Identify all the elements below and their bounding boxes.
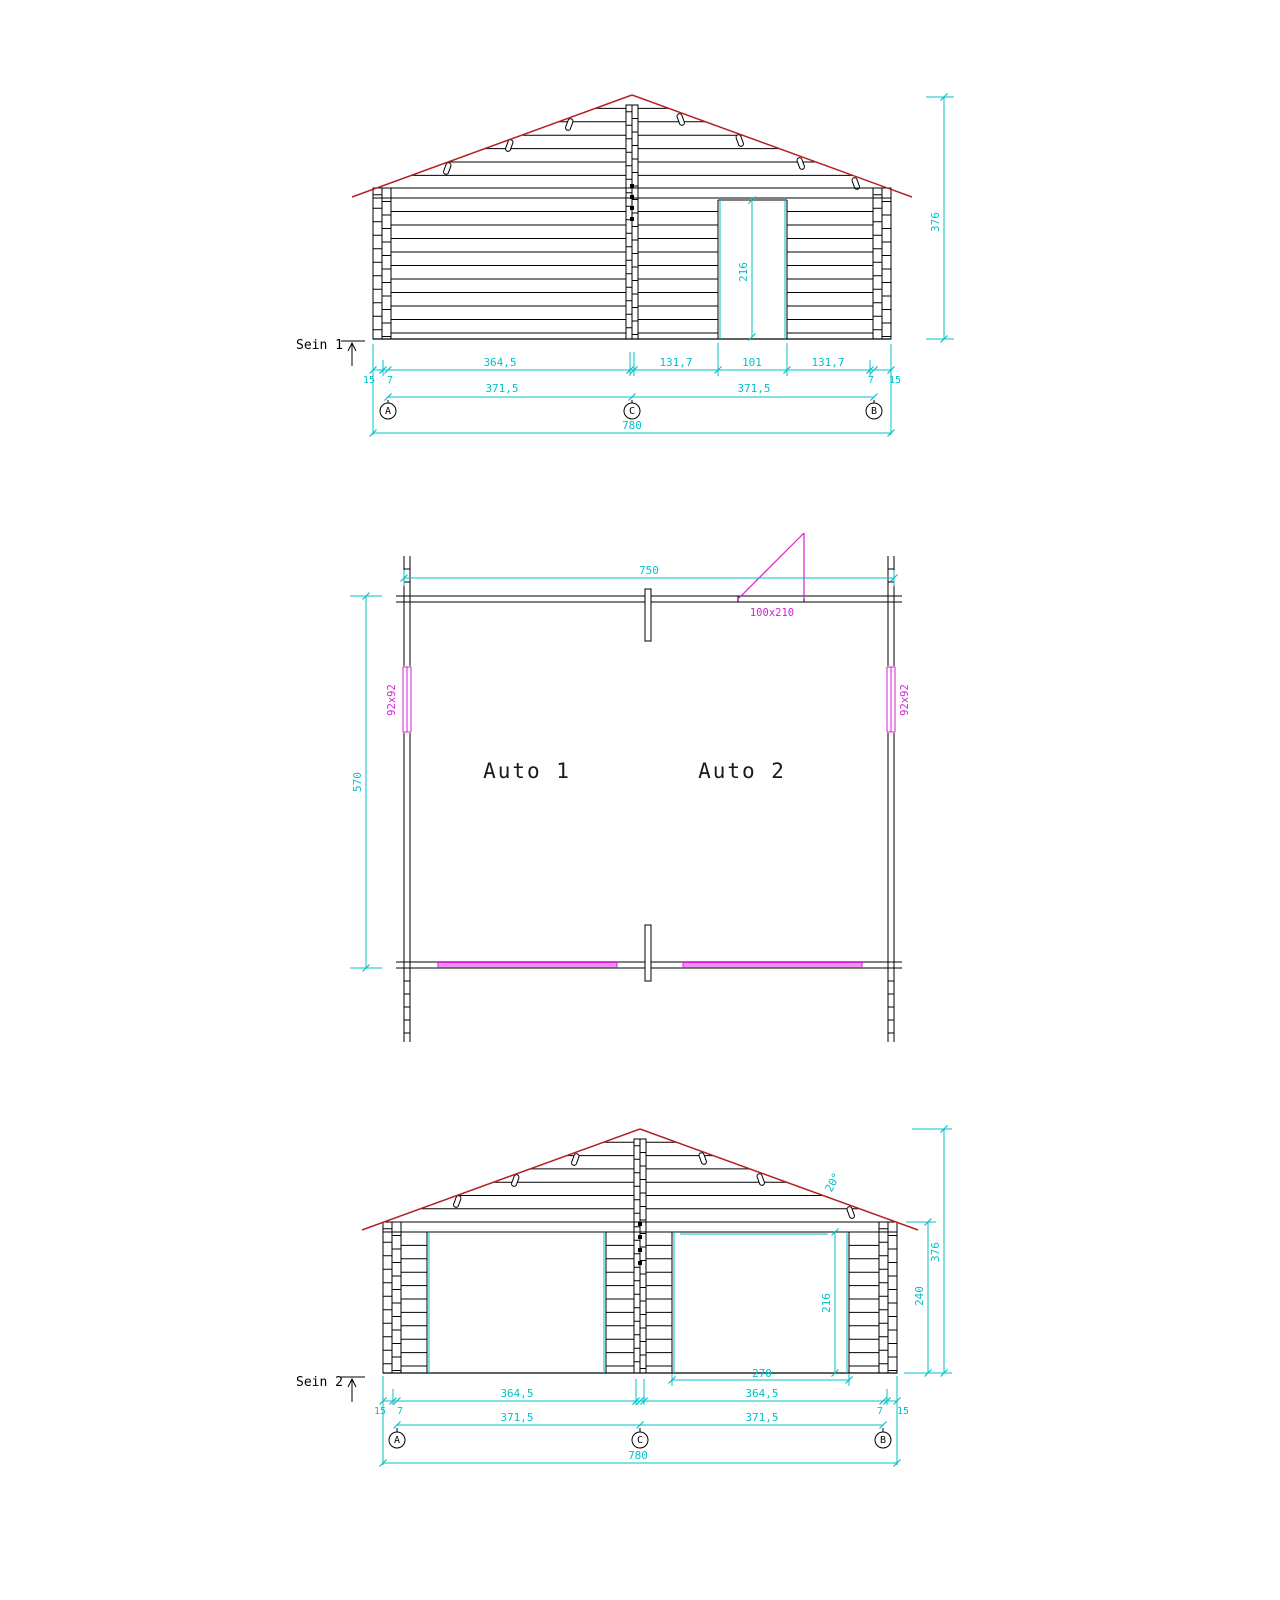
dim-half-right: 371,5 bbox=[745, 1411, 778, 1424]
axis-label-a: A bbox=[385, 406, 391, 417]
bottom-roof-line-right bbox=[640, 1129, 918, 1230]
bay-right-label: Auto 2 bbox=[698, 759, 786, 783]
garage-plan-drawing: A C B Sein 1 364,5 131,7 101 131,7 15 7 … bbox=[0, 0, 1280, 1600]
top-axis-circles: A C B bbox=[380, 403, 882, 419]
dim-opening-height: 216 bbox=[820, 1293, 833, 1313]
dim-edge-15-left: 15 bbox=[374, 1406, 386, 1417]
dim-edge-15-right: 15 bbox=[889, 375, 901, 386]
axis-label-a: A bbox=[394, 1435, 400, 1446]
dim-plan-width: 750 bbox=[639, 564, 659, 577]
fastener-dot bbox=[630, 184, 634, 188]
top-elevation: A C B Sein 1 364,5 131,7 101 131,7 15 7 … bbox=[296, 95, 954, 435]
dim-half-left: 371,5 bbox=[500, 1411, 533, 1424]
dim-seg-left: 364,5 bbox=[500, 1387, 533, 1400]
window-left-label: 92x92 bbox=[386, 684, 398, 716]
bottom-view-marker bbox=[341, 1377, 365, 1402]
dim-half-right: 371,5 bbox=[737, 382, 770, 395]
rafter-end-tick bbox=[796, 157, 805, 170]
floor-plan: 750 570 100x210 92x92 92x92 Auto 1 Auto … bbox=[350, 533, 911, 1042]
top-view-marker bbox=[341, 341, 365, 366]
rafter-end-tick bbox=[571, 1153, 580, 1166]
dim-seg-mid-left: 131,7 bbox=[659, 356, 692, 369]
rafter-end-tick bbox=[676, 113, 685, 126]
dim-edge-7-left: 7 bbox=[397, 1406, 403, 1417]
dimension-tick-marks bbox=[363, 94, 948, 1467]
fastener-dot bbox=[638, 1222, 642, 1226]
bottom-roof-line-left bbox=[362, 1129, 640, 1230]
plan-window-right bbox=[886, 666, 896, 733]
drawing-sheet: A C B Sein 1 364,5 131,7 101 131,7 15 7 … bbox=[0, 0, 1280, 1600]
bottom-dimensions bbox=[383, 1129, 952, 1465]
dim-overall: 780 bbox=[628, 1449, 648, 1462]
plan-door-swing bbox=[738, 533, 804, 599]
plan-center-post bbox=[645, 925, 651, 981]
fastener-dot bbox=[630, 217, 634, 221]
bottom-elevation-log-courses bbox=[383, 1139, 897, 1373]
dim-edge-7-left: 7 bbox=[387, 375, 393, 386]
door-swing-arc bbox=[738, 533, 804, 599]
axis-label-b: B bbox=[880, 1435, 886, 1446]
top-view-label: Sein 1 bbox=[296, 338, 343, 353]
dim-door-height: 216 bbox=[737, 262, 750, 282]
top-roof-line-left bbox=[352, 95, 632, 197]
dim-total-height: 376 bbox=[929, 212, 942, 232]
bay-left-label: Auto 1 bbox=[483, 759, 571, 783]
top-elevation-log-courses bbox=[373, 105, 891, 339]
door-size-label: 100x210 bbox=[750, 607, 794, 619]
dim-opening-width: 270 bbox=[752, 1367, 772, 1380]
dim-edge-7-right: 7 bbox=[877, 1406, 883, 1417]
top-roof-line-right bbox=[632, 95, 912, 197]
dim-edge-15-right: 15 bbox=[897, 1406, 909, 1417]
plan-window-left bbox=[402, 666, 412, 733]
window-right-label: 92x92 bbox=[899, 684, 911, 716]
fastener-dot bbox=[638, 1235, 642, 1239]
dim-edge-15-left: 15 bbox=[363, 375, 375, 386]
bottom-elevation: A C B Sein 2 20° 270 216 240 376 364,5 3… bbox=[296, 1129, 952, 1465]
dim-seg-left: 364,5 bbox=[483, 356, 516, 369]
dim-seg-right: 364,5 bbox=[745, 1387, 778, 1400]
rafter-end-tick bbox=[846, 1206, 855, 1219]
bottom-axis-circles: A C B bbox=[389, 1432, 891, 1448]
dim-seg-door: 101 bbox=[742, 356, 762, 369]
garage-opening-right bbox=[683, 963, 862, 968]
rafter-end-tick bbox=[756, 1173, 765, 1186]
plan-dimensions bbox=[350, 570, 894, 968]
axis-label-c: C bbox=[637, 1435, 643, 1446]
dim-seg-mid-right: 131,7 bbox=[811, 356, 844, 369]
axis-label-c: C bbox=[629, 406, 635, 417]
plan-door-post bbox=[645, 589, 651, 641]
fastener-dot bbox=[638, 1248, 642, 1252]
dim-wall-height: 240 bbox=[913, 1286, 926, 1306]
rafter-end-tick bbox=[565, 118, 574, 131]
fastener-dot bbox=[630, 206, 634, 210]
rafter-end-tick bbox=[698, 1152, 707, 1165]
dim-overall: 780 bbox=[622, 419, 642, 432]
bottom-axis-dashes bbox=[397, 1428, 883, 1432]
fastener-dot bbox=[638, 1261, 642, 1265]
dim-roof-angle: 20° bbox=[823, 1171, 844, 1195]
dim-total-height: 376 bbox=[929, 1242, 942, 1262]
dim-plan-depth: 570 bbox=[351, 772, 364, 792]
garage-opening-left bbox=[438, 963, 617, 968]
dim-edge-7-right: 7 bbox=[868, 375, 874, 386]
axis-label-b: B bbox=[871, 406, 877, 417]
bottom-view-label: Sein 2 bbox=[296, 1375, 343, 1390]
dim-half-left: 371,5 bbox=[485, 382, 518, 395]
